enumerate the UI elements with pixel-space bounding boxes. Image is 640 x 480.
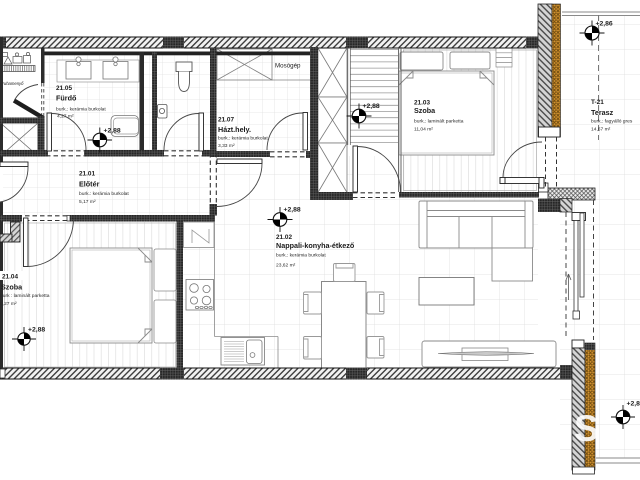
svg-text:Terasz: Terasz — [591, 108, 614, 117]
svg-text:+2,88: +2,88 — [28, 327, 45, 334]
svg-text:ruhamenyő: ruhamenyő — [3, 81, 25, 86]
svg-text:21.01: 21.01 — [79, 171, 95, 178]
svg-text:+2,88: +2,88 — [284, 207, 301, 214]
svg-text:+2,88: +2,88 — [363, 103, 380, 110]
svg-text:Házt.hely.: Házt.hely. — [218, 125, 251, 134]
svg-text:burk.: kerámia burkolat: burk.: kerámia burkolat — [276, 253, 326, 259]
svg-text:burk.: kerámia burkolat: burk.: kerámia burkolat — [79, 191, 129, 197]
svg-text:burk.: laminált parketta: burk.: laminált parketta — [414, 119, 464, 125]
svg-text:14,67 m²: 14,67 m² — [591, 127, 611, 133]
svg-text:Nappali-konyha-étkező: Nappali-konyha-étkező — [276, 241, 355, 250]
svg-text:9,27 m²: 9,27 m² — [0, 301, 17, 307]
svg-text:T-21: T-21 — [591, 99, 604, 106]
svg-text:21.05: 21.05 — [56, 85, 72, 92]
svg-text:Szoba: Szoba — [414, 106, 436, 115]
svg-text:S: S — [574, 408, 599, 449]
svg-text:Mosógép: Mosógép — [275, 63, 301, 70]
svg-text:+2,86: +2,86 — [596, 21, 613, 28]
svg-text:11,04 m²: 11,04 m² — [414, 127, 433, 133]
svg-text:21.07: 21.07 — [218, 117, 234, 124]
svg-text:21.02: 21.02 — [276, 234, 292, 241]
svg-text:Előtér: Előtér — [79, 180, 100, 189]
svg-text:+2,8: +2,8 — [627, 401, 640, 408]
svg-text:5,17 m²: 5,17 m² — [79, 199, 96, 205]
svg-text:burk.: kerámia burkolat: burk.: kerámia burkolat — [56, 107, 106, 113]
svg-text:21.04: 21.04 — [2, 274, 18, 281]
svg-text:burk.: fagyálló gres: burk.: fagyálló gres — [591, 119, 633, 125]
svg-text:Szoba: Szoba — [1, 283, 23, 292]
svg-text:+2,88: +2,88 — [104, 128, 121, 135]
svg-text:burk.: kerámia burkolat: burk.: kerámia burkolat — [218, 136, 268, 142]
svg-text:burk : laminált parketta: burk : laminált parketta — [0, 293, 50, 299]
svg-text:Fürdő: Fürdő — [56, 94, 77, 103]
svg-text:3,33 m²: 3,33 m² — [218, 143, 235, 149]
svg-text:23,62 m²: 23,62 m² — [276, 263, 296, 269]
svg-text:4,27 m²: 4,27 m² — [57, 114, 74, 120]
